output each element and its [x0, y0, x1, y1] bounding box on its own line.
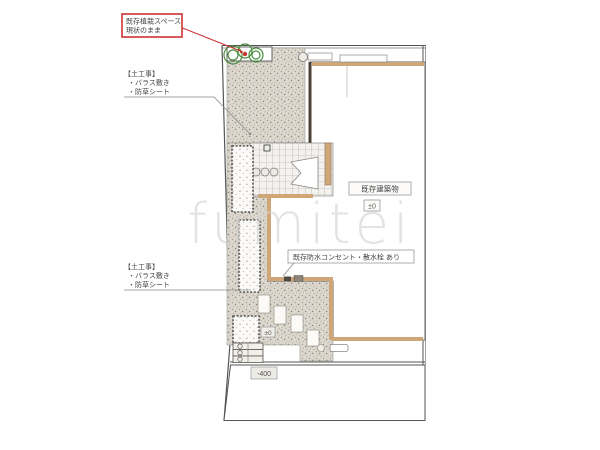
planting-note-line2: 現状のまま [126, 26, 161, 35]
lower-level-note: -400 [251, 367, 277, 379]
earthwork-item2: ・防草シート [128, 87, 170, 96]
earthwork-item2: ・防草シート [128, 280, 170, 289]
planting-note-line1: 既存植栽スペース [126, 17, 181, 26]
earthwork-item1: ・バラス敷き [128, 78, 170, 87]
earthwork-item1: ・バラス敷き [128, 271, 170, 280]
garden-steps [233, 343, 263, 363]
garden-level-note: ±0 [261, 327, 275, 337]
post-circle [299, 53, 308, 62]
earthwork-title: 【土工事】 [124, 69, 159, 78]
paver-circle [270, 168, 278, 176]
paver-circle [261, 168, 269, 176]
site-plan-page: 既存植栽スペース 現状のまま 【土工事】 ・バラス敷き ・防草シート 【土工事】… [0, 0, 600, 450]
earthwork-note-lower: 【土工事】 ・バラス敷き ・防草シート [124, 262, 170, 289]
entrance-wall-band [325, 143, 331, 185]
bottom-step-slab [330, 345, 348, 352]
planter-box [233, 316, 259, 343]
earthwork-title: 【土工事】 [124, 262, 159, 271]
drain-box [264, 145, 270, 151]
planting-note: 既存植栽スペース 現状のまま [122, 14, 182, 37]
leader-target-dot [243, 52, 247, 56]
top-fixtures [299, 53, 388, 63]
lower-level-text: -400 [257, 371, 271, 378]
step-slab [340, 55, 387, 62]
garden-level-text: ±0 [264, 330, 272, 337]
watermark: fumitei [187, 192, 412, 257]
step-slab [308, 53, 332, 60]
round-stone [318, 345, 325, 352]
earthwork-note-upper: 【土工事】 ・バラス敷き ・防草シート [124, 69, 170, 96]
entrance-tile-area [250, 143, 333, 196]
site-plan-canvas: 既存植栽スペース 現状のまま 【土工事】 ・バラス敷き ・防草シート 【土工事】… [0, 0, 600, 450]
